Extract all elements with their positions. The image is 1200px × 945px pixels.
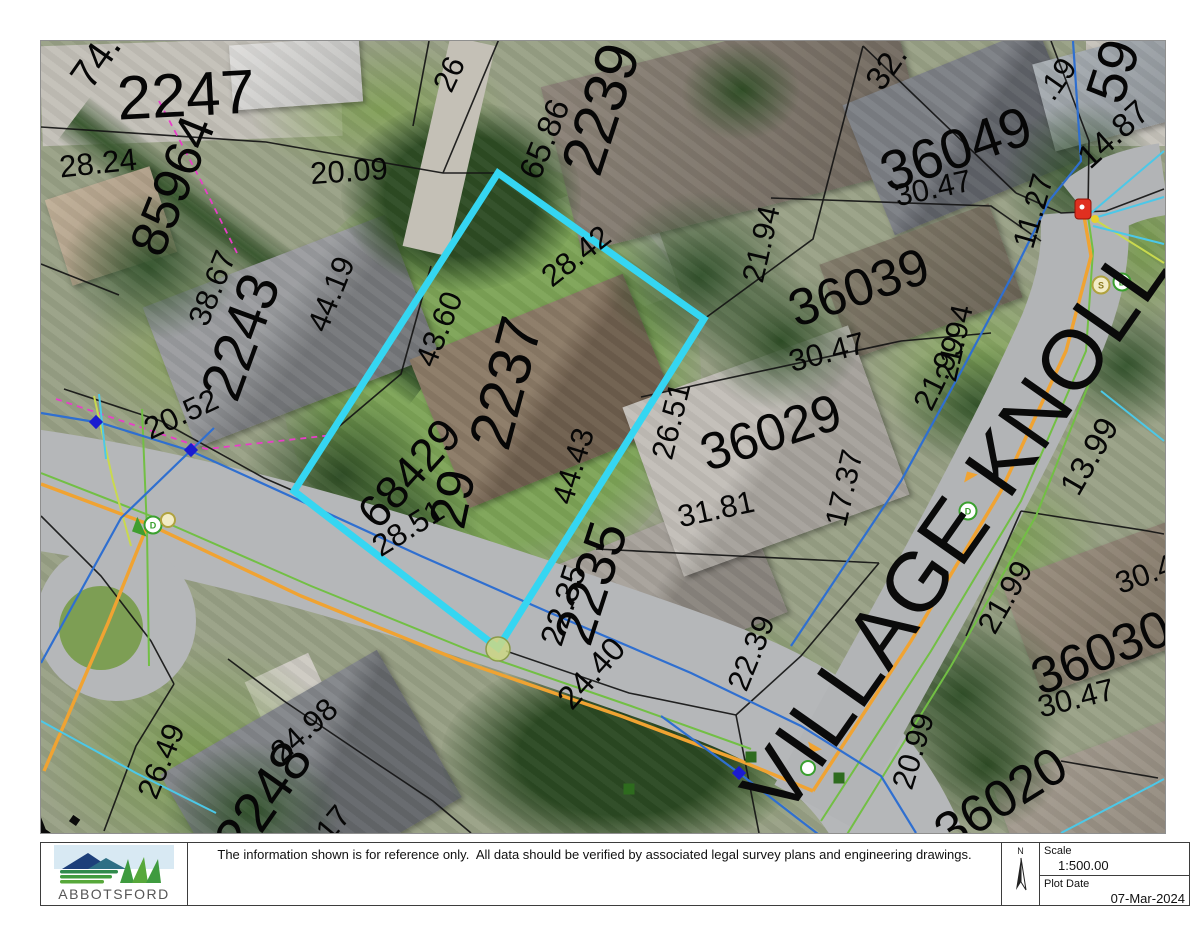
dimension-label: 22.39 bbox=[722, 611, 780, 695]
parcel-label: 36030 bbox=[1024, 602, 1166, 704]
parcel-label: 2247 bbox=[116, 61, 257, 130]
tree-canopy bbox=[441, 651, 801, 834]
dimension-label: 28.24 bbox=[58, 144, 138, 183]
dimension-label: 38.67 bbox=[183, 246, 241, 330]
scale-plotdate-box: Scale 1:500.00 Plot Date 07-Mar-2024 bbox=[1040, 842, 1190, 906]
lawn-patch bbox=[41, 641, 341, 834]
tree-canopy bbox=[341, 101, 581, 291]
manhole-icon: D bbox=[959, 502, 978, 521]
manhole-icon bbox=[800, 760, 816, 776]
dimension-label: 17 bbox=[310, 800, 356, 834]
utility-node-diamond bbox=[89, 415, 103, 429]
abbotsford-logo-icon bbox=[54, 845, 174, 885]
tree-canopy bbox=[61, 191, 241, 341]
aerial-texture bbox=[41, 41, 1165, 833]
tree-canopy bbox=[601, 191, 801, 361]
building-roof bbox=[229, 40, 363, 110]
north-arrow-icon bbox=[1013, 856, 1029, 894]
abbotsford-logo-text: ABBOTSFORD bbox=[58, 886, 169, 902]
manhole-icon: D bbox=[1113, 273, 1132, 292]
pavement-patch bbox=[1086, 41, 1166, 146]
road-layer bbox=[41, 41, 1164, 833]
lawn-patch bbox=[861, 271, 1101, 451]
dimension-label: 30.47 bbox=[892, 165, 974, 211]
dimension-label: 14.87 bbox=[1071, 94, 1154, 174]
dimension-label: 44.43 bbox=[547, 424, 599, 507]
map-document-page: 2247224322392237223522488596468429293604… bbox=[0, 0, 1200, 945]
building-roof bbox=[819, 203, 1022, 359]
pavement-patch bbox=[245, 653, 368, 809]
dimension-label: 21.94 bbox=[930, 302, 978, 385]
dimension-label: 21.94 bbox=[737, 203, 785, 286]
dimension-label: 17.37 bbox=[820, 447, 868, 530]
dimension-label: 13.99 bbox=[1054, 412, 1124, 500]
parcel-label: 36049 bbox=[873, 97, 1038, 201]
tree-canopy bbox=[241, 391, 441, 561]
north-arrow: N bbox=[1002, 842, 1040, 906]
utility-node-square bbox=[746, 752, 757, 763]
parcel-label: 29 bbox=[422, 465, 485, 532]
dimension-label: 21.99 bbox=[972, 556, 1038, 639]
north-label: N bbox=[1017, 846, 1024, 856]
manhole-icon bbox=[160, 512, 176, 528]
disclaimer-text: The information shown is for reference o… bbox=[188, 842, 1002, 906]
building-roof bbox=[622, 325, 909, 576]
dimension-label: 20.52 bbox=[139, 384, 222, 445]
dimension-label: 43.60 bbox=[410, 287, 468, 371]
scale-label: Scale bbox=[1044, 845, 1185, 857]
pavement-patch bbox=[421, 171, 682, 372]
dimension-label: 30.47 bbox=[1111, 543, 1166, 599]
parcel-label: 2237 bbox=[460, 311, 553, 455]
utility-node-square bbox=[624, 784, 635, 795]
parcel-label: 2235 bbox=[545, 515, 637, 651]
map-vector-layer bbox=[41, 41, 1165, 833]
map-area: 2247224322392237223522488596468429293604… bbox=[40, 40, 1166, 834]
dimension-label: 28.51 bbox=[367, 494, 449, 561]
parcel-label: 2243 bbox=[192, 266, 291, 407]
utility-node-diamond bbox=[732, 766, 746, 780]
building-roof bbox=[160, 650, 462, 834]
building-roof bbox=[541, 40, 931, 252]
parcel-label: 36029 bbox=[694, 386, 848, 480]
pavement-patch bbox=[576, 581, 726, 701]
parcel-label: 2248 bbox=[204, 732, 321, 834]
utility-node-square bbox=[834, 773, 845, 784]
plot-date-value: 07-Mar-2024 bbox=[1044, 891, 1185, 906]
dimension-label: 26.49 bbox=[132, 719, 190, 803]
parcel-label: 59 bbox=[1077, 40, 1150, 109]
tree-canopy bbox=[1051, 301, 1166, 431]
parcel-label: 36039 bbox=[782, 240, 936, 336]
dimension-label: 44.19 bbox=[302, 252, 360, 336]
dimension-label: 32. bbox=[859, 40, 912, 95]
dimension-label: 20.99 bbox=[887, 709, 939, 792]
dimension-label: 30.47 bbox=[1035, 674, 1118, 723]
tree-canopy bbox=[321, 461, 481, 601]
dimension-label: 30.47 bbox=[786, 327, 869, 377]
parcel-corner-marker bbox=[486, 637, 510, 661]
lawn-patch bbox=[1081, 161, 1166, 331]
pavement-patch bbox=[40, 40, 343, 146]
building-roof bbox=[1032, 40, 1166, 151]
parcel-boundary-lines bbox=[41, 41, 1164, 833]
hedge bbox=[57, 96, 442, 406]
building-roof bbox=[143, 214, 439, 447]
dimension-label: 24.40 bbox=[551, 631, 631, 714]
plot-date-label: Plot Date bbox=[1044, 878, 1185, 890]
dimension-label: 28.42 bbox=[536, 220, 616, 292]
plot-date-row: Plot Date 07-Mar-2024 bbox=[1040, 876, 1189, 908]
dimension-label: 11.27 bbox=[1008, 171, 1059, 252]
manhole-icon: D bbox=[144, 516, 163, 535]
abbotsford-logo: ABBOTSFORD bbox=[40, 842, 188, 906]
parcel-label: 2239 bbox=[552, 40, 650, 182]
flow-arrow-icon bbox=[956, 461, 978, 483]
highlighted-parcel-2237 bbox=[294, 173, 704, 661]
utility-lines bbox=[41, 41, 1164, 833]
dimension-label: 31.81 bbox=[675, 486, 757, 532]
dimension-label: 22.35 bbox=[535, 561, 592, 650]
dimension-label: 21.99 bbox=[908, 331, 970, 414]
scale-row: Scale 1:500.00 bbox=[1040, 843, 1189, 876]
parcel-label: 36020 bbox=[926, 739, 1076, 834]
dimension-label: .19 bbox=[1032, 52, 1082, 105]
hydrant-valve-icon bbox=[1091, 215, 1099, 223]
lawn-patch bbox=[281, 161, 701, 591]
building-roof bbox=[992, 715, 1166, 834]
street-name-label: VILLAGE KNOLL bbox=[722, 224, 1166, 833]
building-roof bbox=[544, 491, 787, 690]
dimension-label: 26.51 bbox=[647, 380, 696, 463]
lawn-patch bbox=[921, 471, 1101, 611]
tree-canopy bbox=[891, 341, 1061, 471]
street-name-fragment: Y. bbox=[40, 772, 100, 834]
title-block: ABBOTSFORD The information shown is for … bbox=[40, 842, 1190, 906]
utility-node-diamond bbox=[184, 443, 198, 457]
dimension-label: 20.09 bbox=[309, 153, 389, 189]
building-roof bbox=[842, 40, 1089, 235]
parcel-label: 68429 bbox=[349, 410, 469, 536]
building-roof bbox=[409, 274, 682, 509]
tree-canopy bbox=[851, 601, 1071, 791]
fire-hydrant-icon bbox=[1075, 199, 1092, 220]
tree-canopy bbox=[681, 41, 801, 141]
parcel-label: 74. bbox=[64, 40, 129, 95]
parcel-label: 85964 bbox=[122, 109, 224, 263]
dimension-label: 26 bbox=[428, 52, 471, 96]
dimension-label: 65.86 bbox=[513, 95, 575, 184]
flow-arrow-icon bbox=[800, 742, 822, 764]
tree-canopy bbox=[911, 701, 1061, 831]
tree-canopy bbox=[161, 741, 341, 834]
manhole-icon: S bbox=[1092, 276, 1111, 295]
lawn-patch bbox=[81, 271, 301, 441]
tree-canopy bbox=[1001, 101, 1161, 261]
building-roof bbox=[45, 166, 177, 286]
dimension-label: 24.98 bbox=[265, 693, 343, 768]
scale-value: 1:500.00 bbox=[1044, 858, 1185, 873]
building-roof bbox=[1001, 517, 1166, 695]
tree-canopy bbox=[701, 271, 861, 411]
flow-arrow-icon bbox=[117, 517, 146, 546]
lawn-patch bbox=[581, 601, 861, 831]
lawn-patch bbox=[251, 41, 511, 181]
